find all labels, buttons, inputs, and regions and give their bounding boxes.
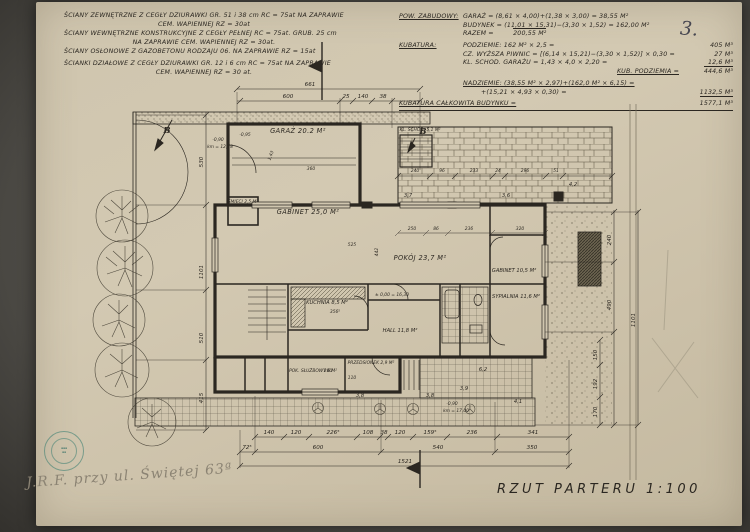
tree-icon — [97, 240, 153, 296]
spot-value: 6,2 — [479, 367, 487, 373]
room-label-sypialnia: SYPIALNIA 11,6 M² — [492, 294, 540, 300]
room-label-hall: HALL 11,8 M² — [383, 328, 418, 334]
dim-label: 600 — [313, 445, 324, 451]
dim-label: 150 — [593, 349, 599, 360]
dim-label: 442 — [374, 248, 380, 257]
room-label-smieci: ŚMIECI 2,5 M² — [228, 198, 259, 205]
door-swing — [490, 237, 503, 250]
dim-label: 356⁵ — [330, 309, 340, 315]
approval-stamp-icon: ▪▪▪▪▪ — [44, 431, 84, 471]
dim-label: 226⁵ — [327, 429, 340, 436]
interior-stairs — [248, 286, 286, 340]
dim-label: 24 — [495, 168, 501, 174]
dim-label: 1101 — [631, 313, 637, 327]
drawing-title: RZUT PARTERU 1:100 — [497, 482, 701, 497]
planter-bed — [578, 232, 601, 286]
dim-label: 51 — [553, 168, 559, 174]
dim-label: 600 — [283, 94, 294, 100]
floor-plan-drawing: GARAŻ 20.2 M² ŚMIECI 2,5 M² GABINET 25,0… — [0, 0, 750, 532]
chimney — [362, 202, 372, 208]
dim-label: 540 — [433, 445, 444, 451]
dim-label: 320 — [516, 226, 525, 232]
level-mark: -0,90 — [212, 137, 224, 143]
dim-label: 250 — [408, 226, 417, 232]
tree-icon — [96, 190, 148, 242]
pencil-scuff — [652, 250, 698, 398]
dim-label: 341 — [528, 430, 539, 436]
section-arrowhead — [155, 139, 163, 150]
tree-icon — [95, 343, 149, 397]
dim-label: 108 — [363, 430, 374, 436]
level-mark: ± 0,00 = 16,30 — [375, 292, 409, 298]
spot-value: 4,2 — [569, 182, 577, 188]
room-label-gabinet2: GABINET 10,5 M² — [492, 268, 536, 274]
dim-label: 170 — [593, 406, 599, 417]
room-label-przedsionek: PRZEDSIONEK 2,9 M² — [348, 360, 395, 366]
site-wall-strip — [133, 112, 430, 124]
dim-label: 661 — [305, 82, 316, 88]
spot-value: 4,1 — [514, 399, 522, 405]
garage-ramp — [232, 158, 356, 165]
gate-swing-arcs — [136, 120, 188, 224]
spot-value: 3,6 — [502, 193, 511, 199]
dim-label: 1521 — [398, 459, 412, 465]
dim-label: 240 — [607, 234, 613, 245]
dim-label: 1101 — [199, 265, 205, 279]
dim-label: 96 — [439, 168, 445, 174]
site-group — [133, 104, 698, 480]
dim-label: 240 — [411, 168, 420, 174]
spot-value: 3,8 — [426, 393, 435, 399]
section-letter-b: B — [162, 126, 170, 136]
dim-label: 280 — [324, 368, 333, 374]
dim-label: 236 — [465, 226, 474, 232]
site-fence — [133, 112, 136, 418]
dim-label: 192 — [593, 378, 599, 389]
stamp-inner-ring: ▪▪▪▪▪ — [51, 438, 77, 464]
terrace-paving — [398, 127, 612, 203]
dim-label: 530 — [199, 156, 205, 167]
level-mark: km = 12,78 — [207, 144, 233, 150]
dim-label: 110 — [348, 375, 357, 381]
section-flag-top — [309, 60, 322, 72]
room-label-pokoj: POKÓJ 23,7 M² — [394, 253, 447, 262]
entrance-patio — [420, 357, 532, 398]
tree-icon — [93, 294, 145, 346]
bottom-paving — [135, 398, 535, 426]
room-label-kuchnia: KUCHNIA 8,5 M² — [306, 300, 348, 306]
kitchen-counter — [291, 299, 305, 327]
dim-label: 86 — [433, 226, 439, 232]
dim-label: 159⁵ — [424, 429, 437, 436]
dim-label: 38 — [379, 94, 387, 100]
column — [554, 192, 563, 201]
dim-label: 296 — [521, 168, 530, 174]
dim-label: 25 — [342, 94, 350, 100]
dim-label: 140 — [358, 94, 369, 100]
kitchen-counter — [291, 287, 365, 299]
dim-label: 72⁵ — [242, 444, 251, 451]
entry-door-swing — [372, 357, 390, 375]
main-body-walls — [215, 205, 545, 357]
stamp-text: ▪▪▪▪▪ — [61, 447, 67, 454]
dim-label: 360 — [307, 166, 316, 172]
level-mark: km = 17,00 — [443, 408, 469, 414]
dim-label: 140 — [264, 430, 275, 436]
dim-label: 120 — [395, 430, 406, 436]
spot-value: 3,7 — [404, 193, 413, 199]
sheet-edge-line — [630, 104, 636, 480]
spot-value: 3,8 — [356, 393, 365, 399]
dim-label: 236 — [467, 430, 478, 436]
dim-label: 120 — [291, 430, 302, 436]
entry-steps — [404, 360, 419, 390]
dim-label: 233 — [470, 168, 479, 174]
dim-label: 350 — [527, 445, 538, 451]
dim-label: 1,43 — [267, 150, 276, 161]
section-letter-b: B — [418, 127, 426, 137]
spot-value: 3,9 — [460, 386, 468, 392]
room-label-gabinet1: GABINET 25,0 M² — [277, 208, 339, 216]
dim-label: 415 — [199, 392, 205, 403]
door-swing — [490, 330, 505, 345]
dim-label: 510 — [199, 332, 205, 343]
dim-label: 490 — [607, 299, 613, 310]
dim-label: 38 — [380, 430, 388, 436]
dim-label: 525 — [348, 242, 357, 248]
level-mark: -0,90 — [446, 401, 458, 407]
room-label-garaz: GARAŻ 20.2 M² — [270, 126, 326, 135]
level-mark: -0,95 — [239, 132, 251, 138]
bathroom-tiles — [442, 287, 488, 343]
